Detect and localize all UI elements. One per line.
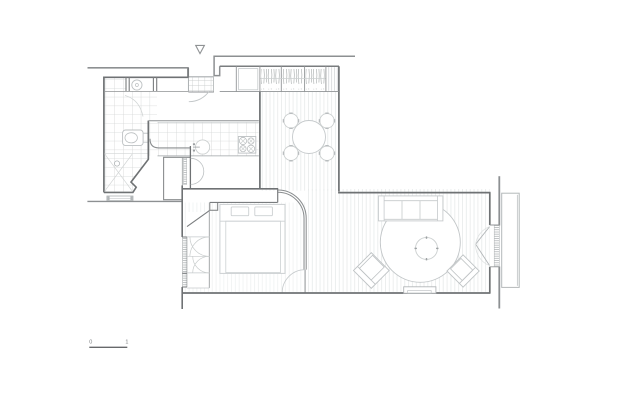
svg-text:0: 0 [89,340,92,346]
svg-text:1: 1 [125,340,128,346]
